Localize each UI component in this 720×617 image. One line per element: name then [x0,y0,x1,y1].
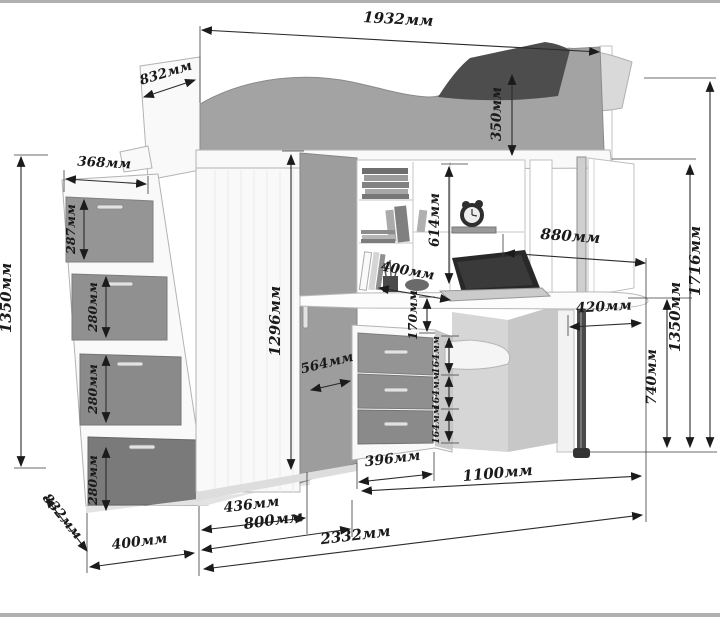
desk-drawer-3 [358,410,433,444]
under-desk-wall-left [452,312,508,452]
photo-border-bottom [0,613,720,617]
under-desk-wall-back [508,305,558,452]
dim-label-stairs-total-height: 1350мм [0,263,15,333]
dim-label-desktop-overhang: 420мм [575,298,632,317]
wardrobe-body [196,168,300,492]
dim-label-top-width: 1932мм [363,8,434,30]
dim-label-stairs-drawer1: 287мм [63,204,78,255]
dim-label-desk-drawer1: 164мм [431,336,442,374]
support-pole-upper [577,157,586,293]
pole-foot [573,448,590,458]
photo-border-top [0,0,720,3]
dim-label-bottom-depth: 832мм [39,491,85,543]
desk-drawer-handle-2 [384,388,408,392]
dim-label-wardrobe-door-height: 1296мм [266,286,284,356]
dim-label-total-height: 1716мм [686,226,704,296]
loft-bed-unit [62,42,648,513]
dim-label-desktop-height: 740мм [644,349,660,405]
dim-line-stairs-base-width [90,553,194,567]
diagram-canvas: 1932мм 832мм 350мм 368мм 287мм 280мм 280… [0,0,720,617]
dim-label-desk-drawer3: 164мм [431,406,442,444]
dim-label-desk-area-width: 1100мм [462,461,534,485]
dim-line-drawer-unit-width [359,474,432,482]
furniture-dimension-diagram: 1932мм 832мм 350мм 368мм 287мм 280мм 280… [0,0,720,617]
dim-label-stairs-top-width: 368мм [77,154,132,173]
books-stack-top [362,168,409,199]
dim-label-stairs-drawer2: 280мм [85,282,100,333]
dim-label-under-bed-height: 1350мм [666,282,684,352]
clock-book [452,227,496,233]
dim-label-stairs-drawer4: 280мм [85,455,100,506]
desk-drawer-handle-1 [384,350,408,354]
dim-label-stairs-drawer3: 280мм [85,364,100,415]
dim-label-desk-drawer2: 164мм [431,372,442,410]
wardrobe-door [300,153,357,483]
stairs-drawer-handle-1 [97,205,123,209]
stairs-drawer-handle-2 [107,282,133,286]
dim-label-shelf-column-height: 614мм [427,193,443,247]
side-panel-right [557,310,574,452]
dim-line-top-width [202,30,599,52]
open-door-panel [588,158,634,296]
dim-label-bed-rail-height: 350мм [489,87,505,141]
dim-label-total-width: 2332мм [318,522,391,549]
stairs-drawer-handle-3 [117,362,143,366]
stairs-drawer-handle-4 [129,445,155,449]
dim-label-shelf-to-drawer-gap: 170мм [405,290,420,340]
dim-label-stairs-base-width: 400мм [111,531,168,554]
desk-drawer-handle-3 [384,422,408,426]
